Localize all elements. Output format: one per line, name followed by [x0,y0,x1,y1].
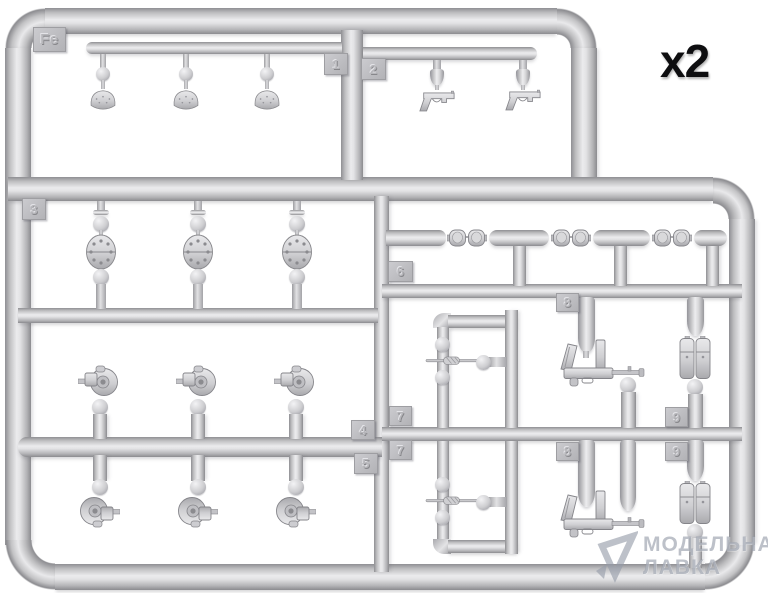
perforated-disc-icon [182,234,214,270]
sprue-post [688,394,703,428]
frame-top-bar [45,8,557,34]
frame-corner-top-right-upper [557,8,597,48]
tag-8-upper: 8 [556,293,579,312]
runner-horizontal-2 [8,177,713,201]
quantity-label: x2 [660,38,709,84]
runner-goggles-segment [593,230,650,246]
sprue-post [289,414,303,439]
ball-joint [190,269,206,285]
ball-joint [260,67,274,81]
sprue-post [614,246,627,286]
ball-joint [288,399,304,415]
sprue-photo: Fe 1 2 3 6 4 5 7 7 8 9 8 9 x2 МОДЕЛЬНАЯ … [0,0,768,593]
ball-joint [435,337,450,352]
watermark-logo-icon [592,531,638,583]
runner-helmets [86,42,342,54]
ball-joint [288,479,304,495]
sprue-post [621,392,636,428]
sprue-drop [430,69,444,86]
sprue-post [96,284,106,309]
ball-joint [435,510,450,525]
goggles-part-icon [551,227,591,249]
ball-joint [620,377,636,393]
sprue-letter-plate: Fe [33,27,66,52]
tag-6: 6 [388,261,413,282]
helmet-part-icon [253,88,281,110]
frame-corner-top-right-lower [713,177,755,219]
tag-1: 1 [324,53,348,75]
sprue-post [93,414,107,439]
perforated-disc-icon [281,234,313,270]
gun-breech-curl-icon [176,365,218,399]
gun-breech-curl-icon [176,494,218,528]
runner-left-lower [18,437,382,457]
goggles-part-icon [447,227,487,249]
pistol-part-icon [504,88,542,113]
runner-goggles-segment [694,230,727,246]
runner-goggles-segment [386,230,446,246]
pistol-part-icon [418,89,456,114]
tag-7-upper: 7 [389,406,412,426]
ball-joint [435,370,450,385]
runner-center-spine [374,196,389,572]
ball-joint [190,479,206,495]
ball-joint [93,269,109,285]
sprue-washer [289,210,305,215]
sprue-washer [190,210,206,215]
watermark: МОДЕЛЬНАЯ ЛАВКА [592,531,768,583]
runner-goggles-segment [489,230,549,246]
tag-8-lower: 8 [556,442,579,461]
sprue-drop [516,69,530,86]
sprue-post [706,246,719,286]
sprue-drop [687,297,704,336]
helmet-part-icon [89,88,117,110]
sprue-post [289,455,303,481]
frame-corner-bottom-left [5,540,55,590]
ammo-pouch-icon [679,336,711,380]
gun-breech-curl-icon [274,494,316,528]
runner-pistols [363,47,537,60]
gun-breech-curl-icon [78,494,120,528]
cleaning-rod-icon [424,494,480,507]
frame-left-bar [5,48,31,545]
ball-joint [190,399,206,415]
sprue-post [193,284,203,309]
sprue-post [292,284,302,309]
watermark-line-1: МОДЕЛЬНАЯ [643,534,768,557]
tag-9-upper: 9 [665,407,688,427]
ball-joint [687,379,703,395]
gun-breech-curl-icon [78,365,120,399]
frame-right-bar [729,219,755,545]
tag-3: 3 [22,198,46,220]
frame-upper-right-bar [571,48,597,189]
sprue-drop [687,440,704,481]
cleaning-rod-icon [424,354,480,367]
perforated-disc-icon [85,234,117,270]
tag-7-lower: 7 [389,440,412,460]
sprue-post [191,455,205,481]
ammo-pouch-icon [679,481,711,525]
tag-4: 4 [351,420,375,440]
ball-joint [435,477,450,492]
tag-9-lower: 9 [665,442,688,461]
ball-joint [96,67,110,81]
tag-5: 5 [354,453,378,474]
ball-joint [92,479,108,495]
sprue-post [191,414,205,439]
ball-joint [179,67,193,81]
sprue-post [93,455,107,481]
runner-left-mid [18,308,378,323]
ball-joint [92,399,108,415]
watermark-line-2: ЛАВКА [643,557,768,580]
gun-breech-curl-icon [274,365,316,399]
runner-loop-right [505,310,518,428]
ball-joint [476,495,491,510]
goggles-part-icon [652,227,692,249]
tag-2: 2 [361,58,386,80]
runner-right-lower [382,427,742,441]
ball-joint [476,355,491,370]
sprue-drop [620,440,636,511]
ball-joint [289,269,305,285]
sprue-washer [93,210,109,215]
helmet-part-icon [172,88,200,110]
sprue-post [513,246,526,286]
